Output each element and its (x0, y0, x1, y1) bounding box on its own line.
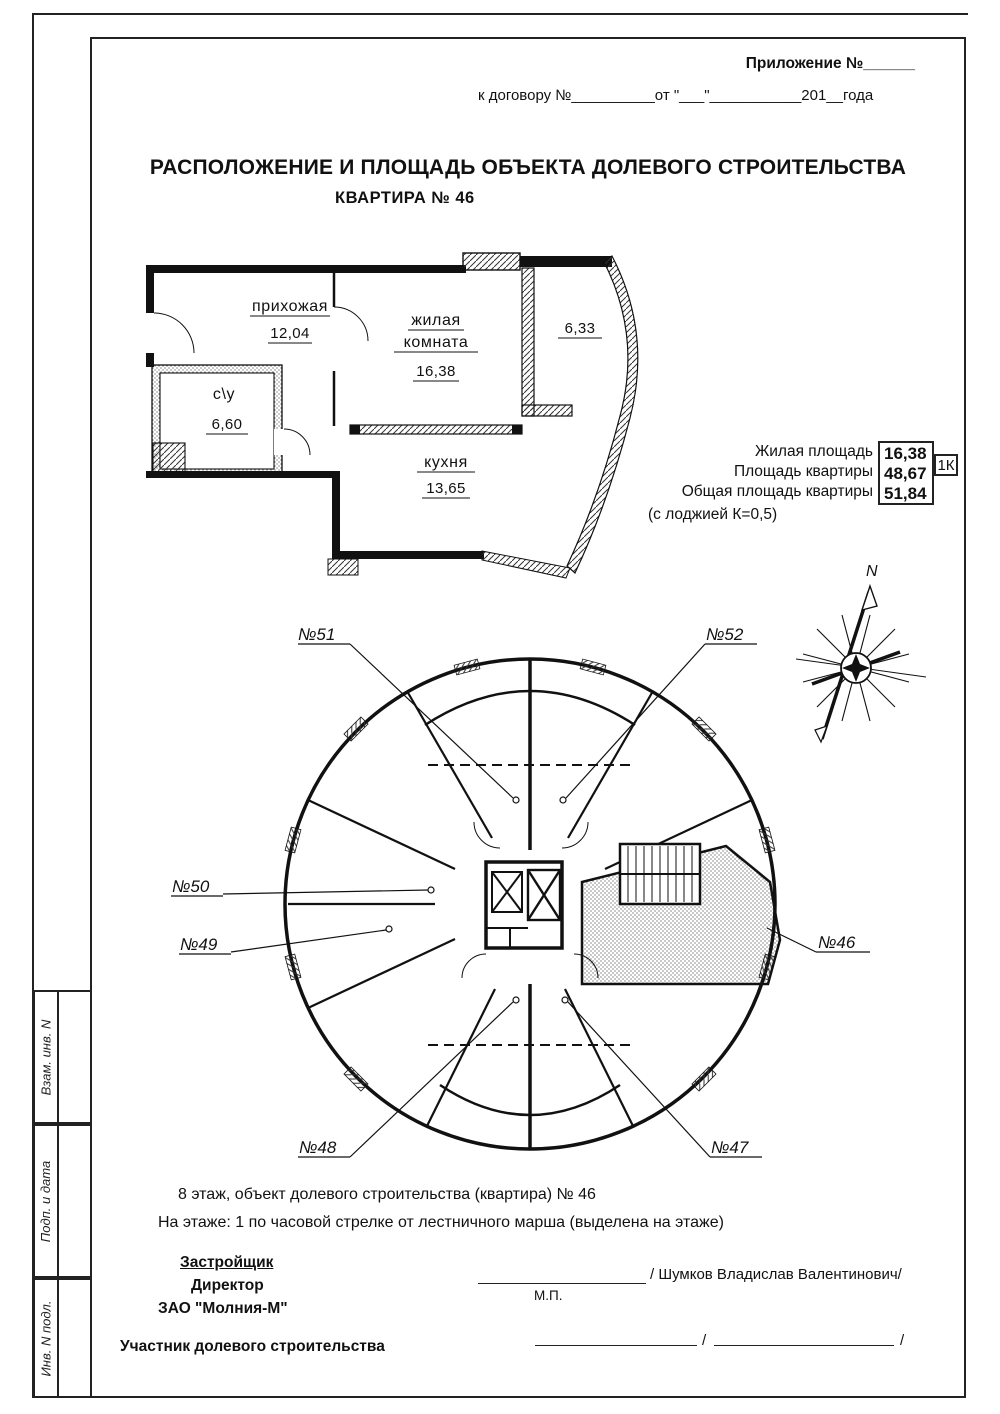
compass-north-label: N (866, 563, 878, 580)
room-area-hallway: 12,04 (270, 325, 310, 342)
apartment-label-52: №52 (706, 625, 744, 644)
stamp-label: М.П. (534, 1288, 562, 1303)
area-label-total: Общая площадь квартиры (630, 482, 873, 502)
page-subtitle: КВАРТИРА № 46 (335, 189, 475, 208)
sidebar-label-col: Подп. и дата (35, 1126, 59, 1276)
outer-top-line (33, 13, 968, 15)
participant-label: Участник долевого строительства (120, 1338, 385, 1356)
room-label-kitchen: кухня (424, 454, 468, 471)
sidebar-label-col: Инв. N подл. (35, 1280, 59, 1396)
developer-signature-line (478, 1268, 646, 1284)
sidebar-box-inv: Инв. N подл. (33, 1278, 92, 1398)
area-value-flat: 48,67 (884, 464, 932, 484)
room-area-bathroom: 6,60 (212, 416, 243, 433)
header-contract-line: к договору №__________от "___"__________… (478, 87, 873, 104)
staircase (620, 844, 700, 904)
room-label-hallway: прихожая (252, 298, 328, 315)
room-area-kitchen: 13,65 (426, 480, 466, 497)
floor-info-line2: На этаже: 1 по часовой стрелке от лестни… (158, 1214, 724, 1232)
sidebar-label-vzam: Взам. инв. N (39, 1019, 54, 1095)
area-label-living: Жилая площадь (630, 442, 873, 462)
apartment-room-labels: прихожая 12,04 жилая комната 16,38 с\у 6… (206, 298, 602, 498)
apartment-label-50: №50 (172, 877, 210, 896)
sidebar-label-col: Взам. инв. N (35, 992, 59, 1122)
room-label-living-1: жилая (411, 312, 461, 329)
apartment-floor-plan: прихожая 12,04 жилая комната 16,38 с\у 6… (140, 243, 640, 593)
sidebar-label-podp: Подп. и дата (39, 1160, 54, 1241)
apartment-label-46: №46 (818, 933, 856, 952)
header-appendix: Приложение №______ (700, 55, 915, 73)
area-values-box: 16,38 48,67 51,84 (878, 441, 934, 505)
apartment-label-48: №48 (299, 1138, 337, 1157)
apartment-label-47: №47 (711, 1138, 749, 1157)
developer-company: ЗАО "Молния-М" (158, 1300, 288, 1318)
area-value-living: 16,38 (884, 444, 932, 464)
sidebar-label-inv: Инв. N подл. (39, 1300, 54, 1376)
developer-heading: Застройщик (180, 1254, 273, 1272)
central-core (486, 862, 562, 948)
room-area-loggia: 6,33 (565, 320, 596, 337)
apartment-label-51: №51 (298, 625, 335, 644)
floor-info-line1: 8 этаж, объект долевого строительства (к… (178, 1186, 596, 1204)
apartment-label-49: №49 (180, 935, 218, 954)
room-label-living-2: комната (404, 334, 469, 351)
room-area-living: 16,38 (416, 363, 456, 380)
participant-signature-line-1 (535, 1330, 697, 1346)
participant-slash-2: / (900, 1332, 904, 1349)
area-note: (с лоджией К=0,5) (648, 506, 777, 524)
sidebar-box-vzam: Взам. инв. N (33, 990, 92, 1124)
participant-signature-line-2 (714, 1330, 894, 1346)
sidebar-box-podp: Подп. и дата (33, 1124, 92, 1278)
building-floor-plan: №51 №52 №50 №49 №46 №48 №47 (170, 610, 960, 1176)
participant-slash-1: / (702, 1332, 706, 1349)
developer-name: / Шумков Владислав Валентинович/ (650, 1266, 902, 1283)
document-page: Взам. инв. N Подп. и дата Инв. N подл. П… (0, 0, 1000, 1414)
room-label-bathroom: с\у (213, 386, 235, 403)
apartment-type-badge: 1К (934, 454, 958, 476)
area-summary-labels: Жилая площадь Площадь квартиры Общая пло… (630, 442, 873, 502)
area-value-total: 51,84 (884, 484, 932, 504)
page-title: РАСПОЛОЖЕНИЕ И ПЛОЩАДЬ ОБЪЕКТА ДОЛЕВОГО … (90, 156, 966, 180)
developer-role: Директор (191, 1277, 264, 1295)
area-label-flat: Площадь квартиры (630, 462, 873, 482)
